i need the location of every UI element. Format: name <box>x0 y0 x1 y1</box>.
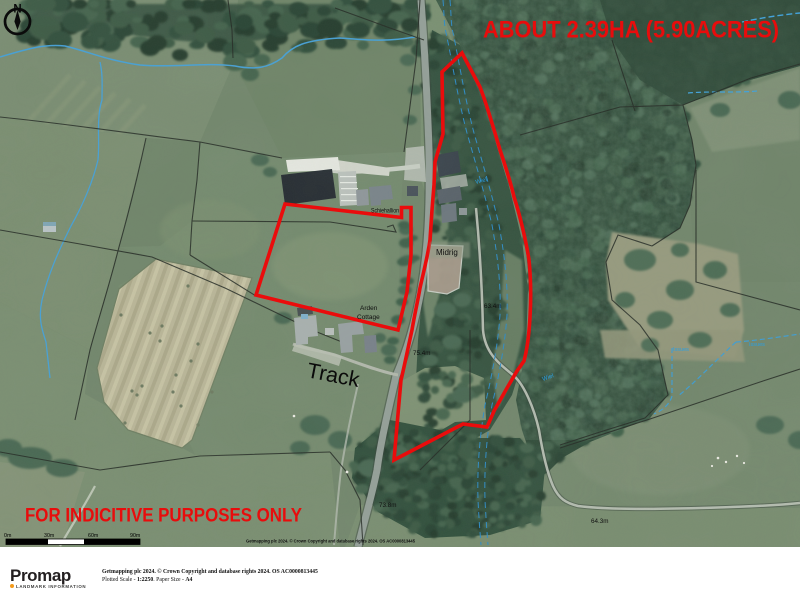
svg-text:Cottage: Cottage <box>357 314 380 321</box>
svg-text:30m: 30m <box>44 533 55 539</box>
svg-text:60m: 60m <box>88 533 99 539</box>
svg-text:63.4m: 63.4m <box>484 303 502 310</box>
svg-text:Issues: Issues <box>749 342 765 348</box>
svg-text:Arden: Arden <box>360 305 378 312</box>
svg-text:75.4m: 75.4m <box>413 350 431 357</box>
svg-text:Getmapping plc 2024. © Crown C: Getmapping plc 2024. © Crown Copyright a… <box>246 538 415 545</box>
svg-text:64.3m: 64.3m <box>591 518 609 525</box>
svg-text:Schiehallion: Schiehallion <box>371 208 399 215</box>
svg-text:73.8m: 73.8m <box>379 502 397 509</box>
svg-text:90m: 90m <box>130 533 141 539</box>
svg-text:Issues: Issues <box>673 347 689 353</box>
svg-text:0m: 0m <box>4 533 12 539</box>
svg-text:ABOUT 2.39HA (5.90ACRES): ABOUT 2.39HA (5.90ACRES) <box>483 17 779 44</box>
svg-text:Midrig: Midrig <box>436 248 458 257</box>
svg-text:FOR INDICITIVE PURPOSES ONLY: FOR INDICITIVE PURPOSES ONLY <box>25 505 302 527</box>
